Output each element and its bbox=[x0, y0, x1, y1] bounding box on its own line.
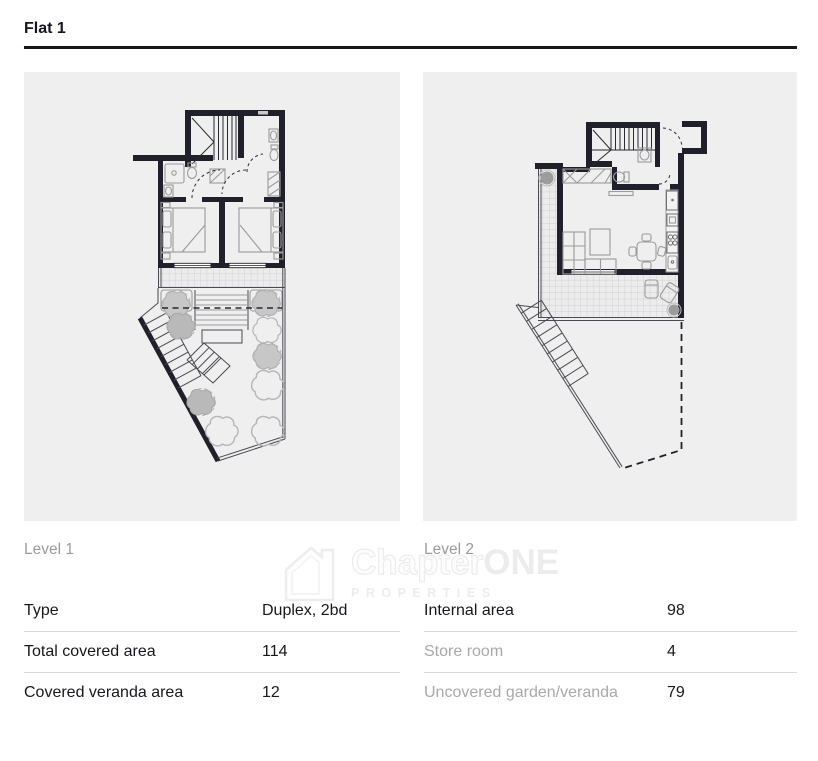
spec-value: Duplex, 2bd bbox=[262, 602, 400, 620]
spec-table-level-1: Type Duplex, 2bd Total covered area 114 … bbox=[24, 591, 400, 713]
spec-label: Store room bbox=[424, 643, 667, 661]
title-rule bbox=[24, 46, 797, 49]
kitchen-counter bbox=[666, 190, 678, 272]
floorplan-level-1 bbox=[24, 72, 400, 521]
spec-row-store-room: Store room 4 bbox=[424, 632, 797, 673]
page-title: Flat 1 bbox=[24, 20, 66, 38]
dining-set bbox=[629, 234, 666, 269]
spec-row-total-covered-area: Total covered area 114 bbox=[24, 632, 400, 673]
veranda-tiles bbox=[158, 268, 285, 288]
spec-label: Total covered area bbox=[24, 643, 262, 661]
spec-value: 98 bbox=[667, 602, 797, 620]
level-1-label: Level 1 bbox=[24, 541, 74, 559]
spec-row-type: Type Duplex, 2bd bbox=[24, 591, 400, 632]
flat-sheet: Flat 1 ChapterONE PROPERTIES bbox=[0, 0, 818, 761]
spec-row-covered-veranda-area: Covered veranda area 12 bbox=[24, 673, 400, 713]
spec-table-level-2: Internal area 98 Store room 4 Uncovered … bbox=[424, 591, 797, 713]
bed-right bbox=[239, 203, 283, 260]
walls bbox=[133, 110, 285, 268]
bed-left bbox=[161, 203, 205, 260]
exterior-stair bbox=[516, 300, 622, 468]
spec-row-internal-area: Internal area 98 bbox=[424, 591, 797, 632]
garden-dashed-boundary bbox=[624, 322, 682, 468]
wc-fixtures bbox=[268, 129, 280, 196]
spec-label: Uncovered garden/veranda bbox=[424, 684, 667, 702]
spec-value: 79 bbox=[667, 684, 797, 702]
spec-value: 12 bbox=[262, 684, 400, 702]
garden-steps bbox=[195, 290, 248, 343]
spec-value: 114 bbox=[262, 643, 400, 661]
floorplan-panel-level-2 bbox=[423, 72, 797, 521]
level-2-label: Level 2 bbox=[424, 541, 474, 559]
spec-label: Type bbox=[24, 602, 262, 620]
watermark-brand-part2: ONE bbox=[483, 543, 559, 582]
garden-trees bbox=[162, 290, 284, 446]
spec-label: Covered veranda area bbox=[24, 684, 262, 702]
coffee-table bbox=[590, 229, 610, 255]
floorplan-panel-level-1 bbox=[24, 72, 400, 521]
spec-row-uncovered-garden-veranda: Uncovered garden/veranda 79 bbox=[424, 673, 797, 713]
floorplan-level-2 bbox=[423, 72, 797, 521]
bathroom bbox=[164, 163, 197, 197]
spec-value: 4 bbox=[667, 643, 797, 661]
stairwell bbox=[192, 116, 236, 164]
spec-label: Internal area bbox=[424, 602, 667, 620]
